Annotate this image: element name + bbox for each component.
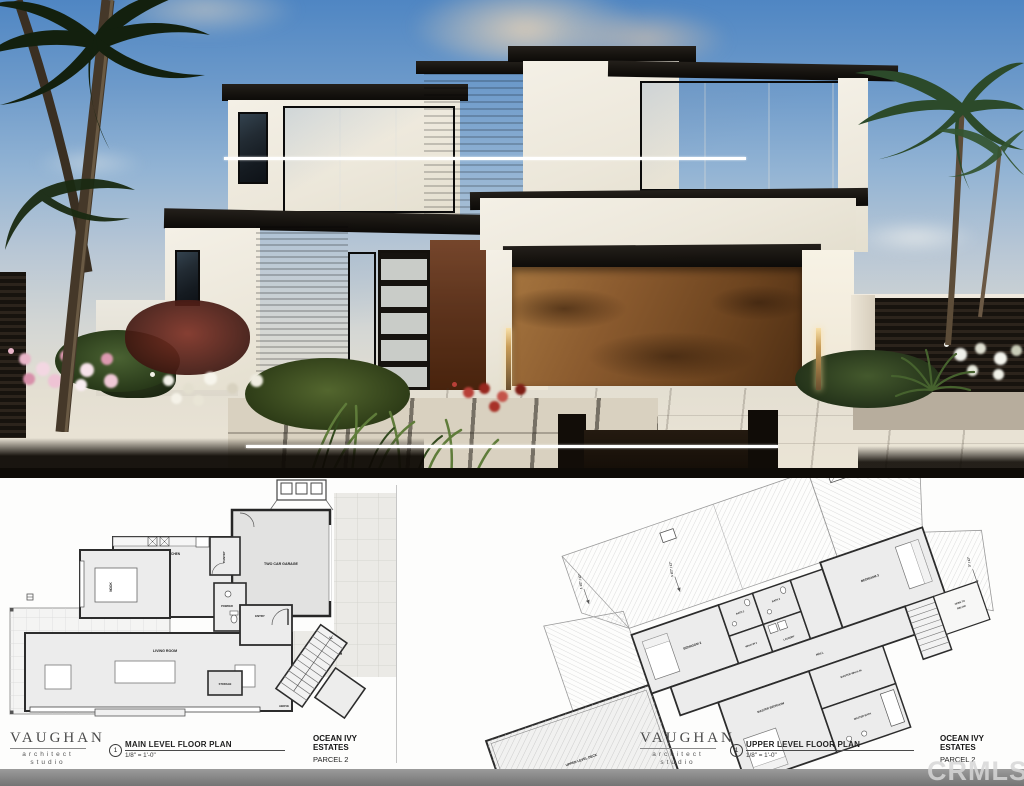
driveway-paving xyxy=(334,493,396,633)
firm-logo-upper: VAUGHAN architect studio xyxy=(640,730,716,766)
firm-subtitle-1: architect xyxy=(640,751,716,759)
small-palm-right xyxy=(886,346,978,404)
room-entry: ENTRY xyxy=(240,605,292,645)
upper-plan-rotated-group: UPPER LEVEL DECK BEDROOM 2 BATH 2 xyxy=(437,478,1024,770)
firm-rule xyxy=(10,748,86,749)
main-level-floor-plan: ENTRY PORCH COVERED PATIO xyxy=(0,478,400,770)
listing-image: ENTRY PORCH COVERED PATIO xyxy=(0,0,1024,786)
upper-left-window-small xyxy=(238,112,268,184)
plan-title-upper: 1 xyxy=(730,742,743,760)
project-block-main: OCEAN IVY ESTATES PARCEL 2 xyxy=(313,734,393,764)
detail-number-circle: 1 xyxy=(730,744,743,757)
palm-fronds-small xyxy=(935,129,1024,177)
upper-level-floor-plan: UPPER LEVEL DECK BEDROOM 2 BATH 2 xyxy=(400,478,1024,770)
plan-title-main-text: MAIN LEVEL FLOOR PLAN 1/8" = 1'-0" xyxy=(125,740,285,759)
sheet-title: MAIN LEVEL FLOOR PLAN xyxy=(125,740,285,749)
ground-shadow-strip xyxy=(0,468,1024,478)
garage-door-shadows xyxy=(512,267,802,386)
project-name: OCEAN IVY ESTATES xyxy=(313,734,393,752)
bollard-light xyxy=(506,328,511,390)
sheet-scale: 1/8" = 1'-0" xyxy=(746,752,914,759)
project-name: OCEAN IVY ESTATES xyxy=(940,734,1020,752)
room-nook: NOOK xyxy=(80,550,170,618)
roof-slab-tower xyxy=(508,46,696,62)
room-label-powder: POWDER xyxy=(221,604,233,608)
garage-roof-feature xyxy=(270,480,333,510)
room-label-living: LIVING ROOM xyxy=(153,649,177,653)
firm-subtitle-1: architect xyxy=(10,751,86,759)
detail-number-circle: 1 xyxy=(109,744,122,757)
sheet-scale: 1/8" = 1'-0" xyxy=(125,752,285,759)
palm-tree-left xyxy=(0,0,240,432)
plan-title-upper-text: UPPER LEVEL FLOOR PLAN 1/8" = 1'-0" xyxy=(746,740,914,759)
redaction-line-bottom xyxy=(246,445,778,448)
project-parcel: PARCEL 2 xyxy=(313,755,393,764)
crmls-watermark: CRMLS xyxy=(927,756,1024,786)
palm-tree-right xyxy=(830,55,1024,345)
firm-subtitle-2: studio xyxy=(10,759,86,767)
title-underline xyxy=(746,750,914,751)
bollard-light xyxy=(816,328,821,390)
exterior-rendering-photo xyxy=(0,0,1024,478)
palm-fronds-lower xyxy=(5,179,135,250)
redaction-line-top xyxy=(224,157,746,160)
palm-blades xyxy=(892,350,974,396)
room-label-storage: STORAGE xyxy=(219,682,232,686)
firm-subtitle-2: studio xyxy=(640,759,716,767)
stairs-above-label: ABOVE xyxy=(279,704,289,708)
palm-trunks xyxy=(18,0,112,432)
room-label-garage: TWO CAR GARAGE xyxy=(264,562,299,566)
upper-right-window xyxy=(640,81,840,191)
footer-band xyxy=(0,769,1024,786)
room-label-nook: NOOK xyxy=(109,582,113,592)
sheet-title: UPPER LEVEL FLOOR PLAN xyxy=(746,740,914,749)
room-storage: STORAGE xyxy=(208,671,242,695)
firm-rule xyxy=(640,748,716,749)
room-label-pantry: PANTRY xyxy=(222,551,226,562)
firm-logo-main: VAUGHAN architect studio xyxy=(10,730,86,766)
plan-title-main: 1 xyxy=(109,742,122,760)
room-label-entry: ENTRY xyxy=(255,614,265,618)
title-underline xyxy=(125,750,285,751)
floor-plan-sheets: ENTRY PORCH COVERED PATIO xyxy=(0,478,1024,770)
firm-name: VAUGHAN xyxy=(640,730,716,747)
flower-cluster-red xyxy=(452,382,457,387)
firm-name: VAUGHAN xyxy=(10,730,86,747)
room-pantry: PANTRY xyxy=(210,537,240,575)
garage-upper-wall xyxy=(480,198,856,250)
entry-accent-right xyxy=(430,240,488,390)
